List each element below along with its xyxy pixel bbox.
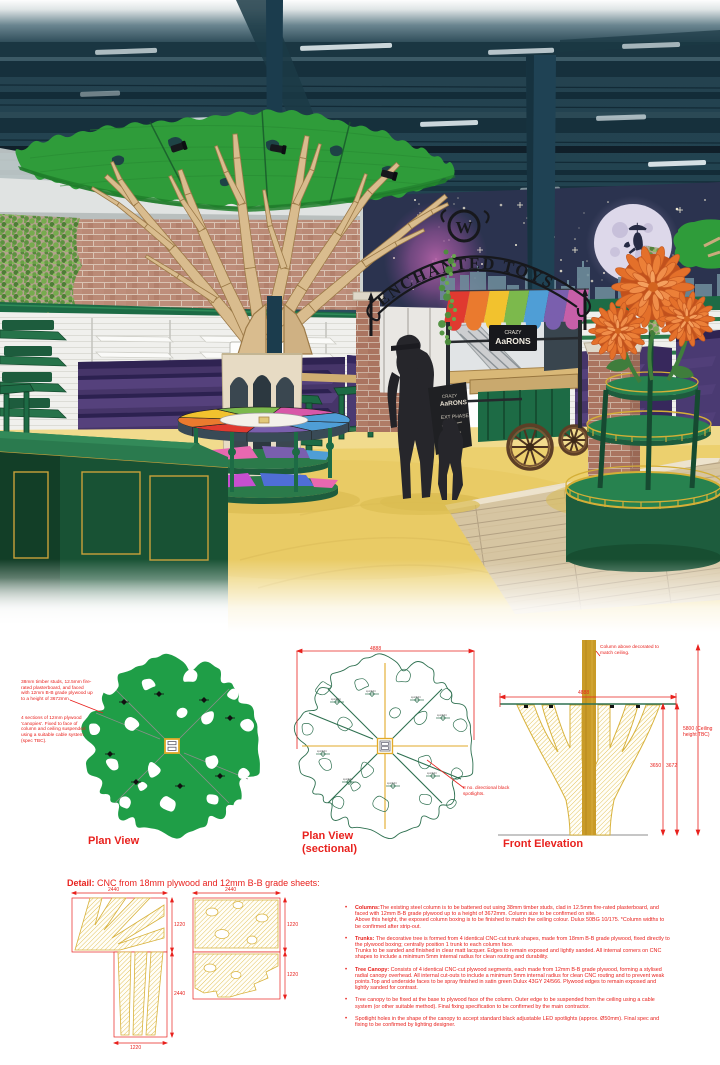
svg-text:spotlight: spotlight [317,749,327,753]
svg-text:spotlight: spotlight [411,695,421,699]
svg-text:spotlight: spotlight [387,781,397,785]
svg-text:spotlight: spotlight [366,689,376,693]
svg-text:spotlight: spotlight [437,713,447,717]
svg-text:spotlight: spotlight [343,777,353,781]
svg-text:spotlight: spotlight [331,697,341,701]
svg-text:spotlight: spotlight [427,771,437,775]
